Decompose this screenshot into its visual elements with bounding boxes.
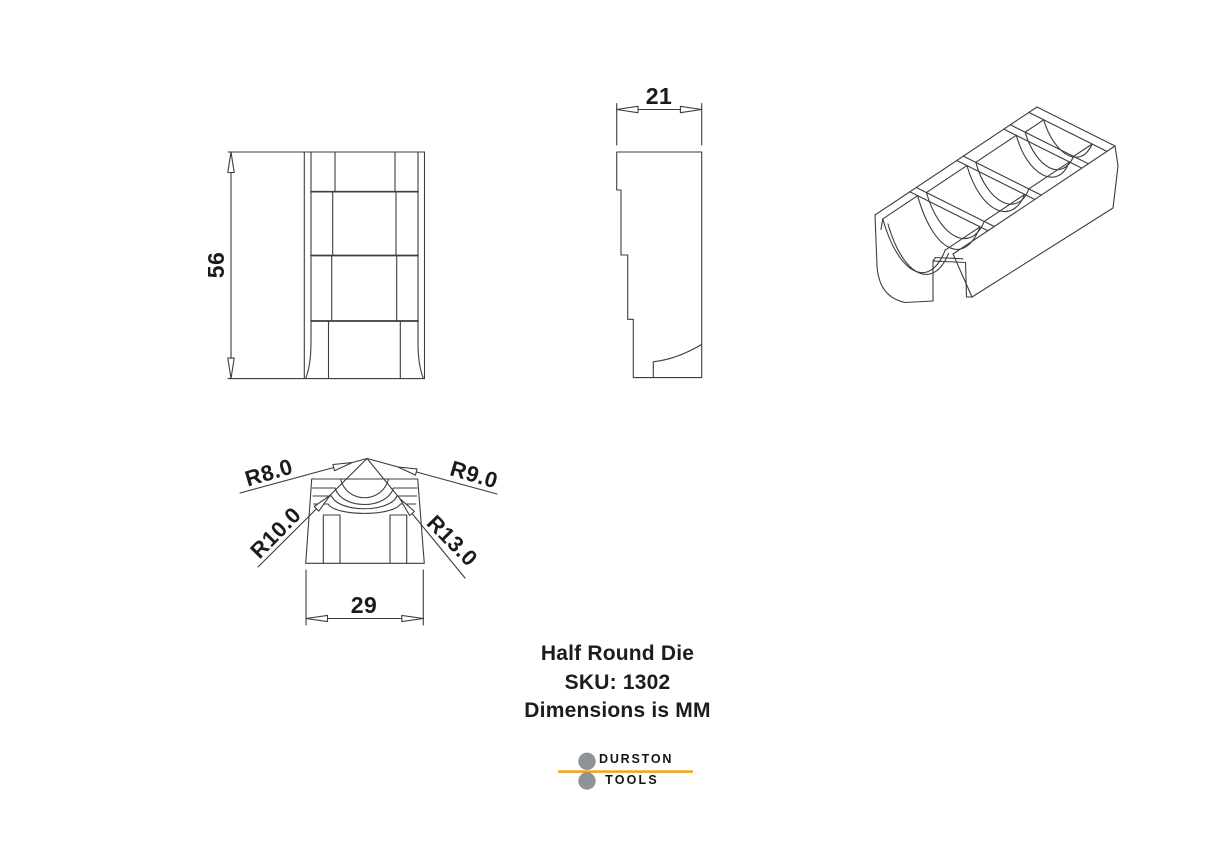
front-view-drawing	[228, 152, 425, 379]
units-note: Dimensions is MM	[455, 697, 780, 726]
side-view-drawing	[617, 104, 702, 378]
roller-top-icon	[578, 753, 595, 770]
side-thickness-dim-label: 21	[646, 83, 673, 109]
title-block: Half Round Die SKU: 1302 Dimensions is M…	[455, 640, 780, 726]
end-width-dim-label: 29	[351, 592, 378, 618]
part-name: Half Round Die	[455, 640, 780, 669]
technical-drawing-svg: 56 21 R8.0 R9.0 R10.0 R13.0 29	[0, 0, 1214, 858]
radius-r10-label: R10.0	[245, 502, 306, 563]
front-height-dim-label: 56	[203, 252, 229, 279]
part-sku: SKU: 1302	[455, 669, 780, 698]
isometric-view-drawing	[875, 107, 1118, 303]
roller-bottom-icon	[578, 772, 595, 789]
brand-subname: TOOLS	[599, 773, 665, 787]
brand-name: DURSTON	[599, 752, 665, 766]
drawing-sheet: 56 21 R8.0 R9.0 R10.0 R13.0 29 Half Roun…	[0, 0, 1214, 858]
